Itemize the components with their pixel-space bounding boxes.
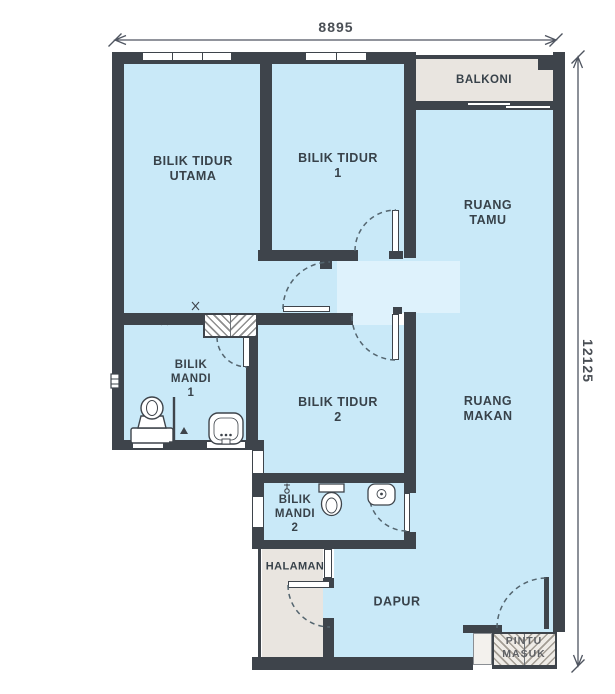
- window-mullion: [202, 53, 203, 60]
- room-label-bilik-tidur-1: BILIK TIDUR 1: [298, 151, 378, 182]
- wall-bt2-bottom: [252, 473, 416, 483]
- wall-left: [112, 52, 124, 450]
- dimension-width-label: 8895: [318, 19, 353, 35]
- door-hinge-bt1: [389, 251, 403, 259]
- window-bt2-left: [252, 450, 264, 474]
- room-ruang-tamu-makan: [416, 110, 553, 657]
- room-label-ruang-tamu: RUANG TAMU: [464, 198, 512, 229]
- room-label-dapur: DAPUR: [374, 594, 421, 609]
- dim-tick-left: [109, 34, 122, 47]
- window-mandi1-bottom-1: [132, 441, 164, 449]
- room-label-halaman: HALAMAN: [266, 560, 324, 573]
- room-label-bilik-tidur-2: BILIK TIDUR 2: [298, 395, 378, 426]
- entrance-hatch-base: [492, 667, 557, 669]
- window-halaman: [324, 549, 332, 578]
- wall-bt1-left: [260, 64, 272, 257]
- window-mullion: [172, 53, 173, 60]
- balcony-column: [538, 59, 553, 70]
- doorway-bt2-gap: [353, 313, 392, 325]
- door-leaf-entrance: [544, 577, 549, 629]
- balcony-railing: [416, 55, 553, 59]
- wall-halaman-left: [258, 549, 261, 658]
- door-leaf-halaman: [288, 581, 330, 588]
- dim-tick-top: [572, 51, 585, 64]
- entrance-step: [473, 633, 492, 665]
- door-leaf-mandi1: [243, 337, 250, 367]
- room-label-bilik-mandi-2: BILIK MANDI 2: [275, 493, 315, 535]
- hatch-cell: [205, 315, 230, 336]
- room-label-bilik-tidur-utama: BILIK TIDUR UTAMA: [153, 154, 233, 185]
- dimension-height-label: 12125: [580, 339, 596, 383]
- door-stop-hall: [320, 261, 332, 269]
- wall-tamu-left: [404, 52, 416, 258]
- room-label-pintu-masuk: PINTU MASUK: [502, 635, 546, 661]
- wall-bt1-bottom: [258, 250, 358, 261]
- door-leaf-hall: [283, 306, 330, 312]
- room-label-balkoni: BALKONI: [456, 73, 512, 87]
- window-mandi2-left: [252, 496, 264, 528]
- wall-utama-bottom: [112, 313, 203, 325]
- hatch-cell: [231, 315, 256, 336]
- window-utama-top: [142, 52, 232, 61]
- dim-tick-right: [550, 34, 563, 47]
- dim-arrow-top: [574, 57, 583, 68]
- door-leaf-mandi2: [404, 493, 410, 532]
- floor-plan: BILIK TIDUR UTAMA BILIK TIDUR 1 BALKONI …: [0, 0, 615, 694]
- wall-mandi2-bottom: [252, 540, 416, 549]
- wall-halaman-div-lower: [323, 618, 334, 658]
- balcony-slider-panel-2: [505, 105, 551, 109]
- door-leaf-bt1: [392, 210, 399, 253]
- hall-area: [337, 261, 460, 313]
- door-stop-bt2: [393, 307, 402, 314]
- room-label-ruang-makan: RUANG MAKAN: [463, 394, 512, 425]
- dim-arrow-left: [115, 36, 126, 45]
- doorway-halaman-gap: [323, 588, 334, 618]
- window-mullion: [336, 53, 337, 60]
- door-leaf-bt2: [392, 314, 399, 360]
- corridor-hatch-cabinet: [203, 313, 258, 338]
- dim-tick-bottom: [572, 660, 585, 673]
- dim-arrow-bottom: [574, 655, 583, 666]
- room-label-bilik-mandi-1: BILIK MANDI 1: [171, 358, 211, 400]
- wall-bottom: [252, 657, 473, 670]
- dim-arrow-right: [545, 36, 556, 45]
- wall-bt2-right: [404, 312, 416, 493]
- wall-right: [553, 52, 565, 632]
- window-bt1-top: [305, 52, 367, 61]
- window-mandi1-bottom-2: [206, 441, 246, 449]
- wall-bt2-top: [258, 313, 353, 325]
